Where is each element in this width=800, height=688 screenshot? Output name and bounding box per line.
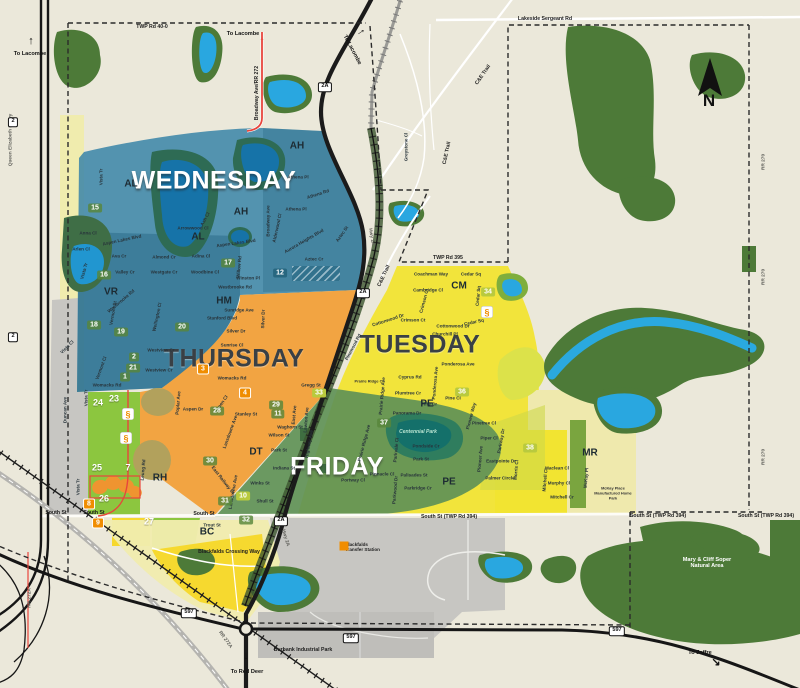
zone-number-badge: 1 — [120, 373, 130, 382]
street-label: Cyprus Rd — [398, 375, 421, 380]
street-label: Arlen Cl — [72, 247, 90, 252]
street-label: Aspen Lakes Blvd — [216, 238, 256, 248]
road-label: South St (TWP Rd 394) — [738, 513, 794, 519]
street-label: Parkway Dr — [496, 428, 505, 454]
arrow-icon: ↓ — [243, 650, 249, 662]
arrow-icon: ↑ — [259, 35, 265, 47]
direction-label: To Lacombe — [227, 31, 260, 37]
neighborhood-code: AH — [290, 141, 304, 152]
street-label: Sunridge Ave — [224, 308, 253, 313]
street-label: Vista Tr — [99, 169, 104, 186]
zone-number-badge: 11 — [271, 410, 284, 419]
street-label: Valley Cr — [115, 270, 134, 275]
road-label: C&E Trail — [474, 64, 492, 86]
street-label: Mitchell Cl — [542, 468, 549, 491]
zone-number-badge: 29 — [269, 401, 283, 410]
street-label: Pondside Cr — [412, 444, 439, 449]
street-label: Aurora Heights Blvd — [284, 228, 325, 255]
park-label: Centennial Park — [395, 429, 441, 435]
street-label: Athena Rd — [306, 188, 329, 200]
street-label: Westview Cr — [145, 368, 172, 373]
street-label: Broadway Ave — [266, 205, 271, 236]
street-label: Athena Pl — [285, 207, 306, 212]
north-label: N — [703, 91, 715, 111]
street-label: Palisades St — [400, 473, 427, 478]
street-label: Silver Dr — [227, 329, 246, 334]
edge-road-label: RR 270 — [762, 154, 767, 170]
zone-number-badge: 8 — [83, 499, 95, 510]
zone-number-badge: 32 — [239, 516, 253, 525]
arrow-icon: ↑ — [28, 35, 34, 47]
edge-road-label: RR 270 — [762, 449, 767, 465]
street-label: Aspen Dr — [183, 407, 203, 412]
highway-shield: 2A — [274, 516, 288, 526]
zone-number-badge: 3 — [197, 364, 209, 375]
highway-shield: 597 — [181, 608, 197, 618]
zone-number-badge: 36 — [455, 388, 469, 397]
neighborhood-code: CM — [451, 281, 467, 292]
note-label: Blackfalds Transfer Station — [345, 542, 387, 552]
road-label: Burbank Industrial Park — [274, 647, 333, 653]
school-icon: § — [482, 307, 493, 318]
street-label: Waghorn St — [277, 425, 303, 430]
street-label: Lansdowne Ave — [222, 415, 239, 449]
street-label: Winston Pl — [236, 276, 260, 281]
street-label: Greystone Cl — [404, 133, 409, 162]
street-label: Crimson Ct — [401, 318, 426, 323]
zone-day-label: TUESDAY — [360, 331, 481, 360]
zone-number-badge: 34 — [481, 288, 495, 297]
street-label: Indiana St — [273, 466, 295, 471]
street-label: Parkridge Cr — [404, 486, 432, 491]
zone-number-badge: 2 — [129, 353, 139, 362]
street-label: Panorama Dr — [393, 411, 422, 416]
road-label: South St (TWP Rd 394) — [630, 513, 686, 519]
street-label: Womacks Rd — [218, 376, 247, 381]
street-label: Palmer Circle — [485, 476, 514, 481]
neighborhood-code: VR — [104, 287, 118, 298]
direction-label: To Red Deer — [231, 669, 264, 675]
street-label: Mitchell Cr — [550, 495, 573, 500]
road-label: TWP Rd 40-0 — [136, 24, 168, 30]
road-label: Blackfalds Crossing Way — [198, 549, 260, 555]
highway-shield: 2A — [318, 82, 332, 92]
school-icon: § — [121, 433, 132, 444]
street-label: Wilson St — [269, 433, 290, 438]
street-label: Ava Cr — [112, 254, 127, 259]
street-label: Eastpointe Dr — [486, 459, 516, 464]
zone-number-badge: 4 — [239, 388, 251, 399]
neighborhood-code: HM — [216, 296, 232, 307]
street-label: Shull St — [256, 499, 273, 504]
collection-zone-map: WEDNESDAYTHURSDAYTUESDAYFRIDAYTWP Rd 40-… — [0, 0, 800, 688]
road-label: C&E Trail — [376, 264, 391, 287]
street-label: Parkvale Cl — [392, 437, 399, 462]
zone-number-badge: 18 — [87, 321, 101, 330]
street-label: Vermont St — [108, 301, 117, 326]
street-label: Park St — [413, 457, 429, 462]
street-label: Womacks Rd — [93, 383, 122, 388]
street-label: Pioneer Way — [465, 402, 477, 430]
highway-shield: 2A — [356, 288, 370, 298]
edge-road-label: Hwy 2A — [367, 228, 375, 246]
street-label: Cedar Sq — [464, 317, 485, 326]
street-label: Woodbine Cl — [191, 270, 219, 275]
zone-number-badge: 33 — [312, 389, 326, 398]
street-label: Coachman Way — [414, 272, 448, 277]
street-label: Morris Cl — [513, 460, 520, 480]
street-label: Athena Pl — [287, 175, 308, 180]
street-label: Pine Cr — [421, 402, 437, 407]
road-label: South St — [83, 510, 104, 516]
neighborhood-code: AH — [234, 207, 248, 218]
note-label: McKay Place Manufactured Home Park — [592, 486, 634, 501]
street-label: Westbrooke Rd — [218, 285, 252, 290]
neighborhood-code: AL — [124, 179, 137, 190]
street-label: Ponderosa Ave — [431, 366, 439, 399]
edge-road-label: RR 272A — [28, 588, 33, 608]
street-label: Pinetree Cl — [472, 421, 496, 426]
street-label: Stanford Blvd — [207, 316, 237, 321]
road-label: Lakeside Sergeant Rd — [518, 16, 572, 22]
street-label: Portway Cl — [341, 478, 365, 483]
street-label: Vermont Cl — [95, 356, 108, 380]
arrow-icon: ↘ — [711, 656, 720, 669]
road-label: C&E Trail — [442, 141, 453, 165]
transfer-station-icon — [340, 542, 349, 551]
street-label: Vista Tr — [84, 390, 89, 407]
street-label: Vista Cl — [59, 339, 74, 354]
zone-number-badge: 10 — [236, 492, 250, 501]
zone-number-badge: 38 — [523, 444, 537, 453]
zone-number-badge: 12 — [273, 269, 287, 278]
zone-number-badge: 21 — [126, 364, 140, 373]
highway-shield: 2 — [8, 332, 18, 342]
street-label: Pinnacle Cl — [370, 472, 395, 477]
street-label: McKay Pl — [583, 468, 590, 489]
road-label: TWP Rd 395 — [433, 255, 463, 261]
edge-road-label: RR 270 — [762, 269, 767, 285]
street-label: Trout St — [203, 523, 220, 528]
neighborhood-code: DT — [249, 447, 262, 458]
street-label: Westview Cr — [147, 348, 174, 353]
zone-number-badge: 17 — [221, 259, 235, 268]
street-label: Parkwood Dr — [391, 476, 398, 505]
street-label: Aztec Cr — [305, 257, 324, 262]
neighborhood-code: RH — [153, 473, 167, 484]
direction-label: To Joffre — [688, 650, 712, 656]
zone-number-badge: 30 — [203, 457, 217, 466]
zone-number-badge: 28 — [210, 407, 224, 416]
zone-number-badge: 7 — [122, 463, 133, 474]
street-label: Anna Cl — [79, 231, 96, 236]
zone-day-label: THURSDAY — [164, 345, 305, 374]
street-label: Park St — [271, 448, 287, 453]
street-label: Vista Tr — [79, 262, 88, 279]
street-label: Churchill Pl — [432, 332, 458, 337]
street-label: Leung Rd — [140, 459, 147, 481]
street-label: Silver Dr — [260, 309, 266, 328]
road-label: Broadway Ave/RR 272 — [254, 66, 260, 120]
street-label: Winks St — [250, 481, 269, 486]
street-label: Adina Cl — [192, 254, 211, 259]
zone-number-badge: 24 — [90, 398, 106, 409]
road-label: South St — [45, 510, 66, 516]
arrow-icon: ↑ — [355, 26, 368, 37]
street-label: Aztec St — [335, 225, 349, 243]
map-labels-layer: WEDNESDAYTHURSDAYTUESDAYFRIDAYTWP Rd 40-… — [0, 0, 800, 688]
zone-number-badge: 25 — [89, 463, 105, 474]
zone-number-badge: 37 — [377, 419, 391, 428]
street-label: Murphy Cl — [548, 481, 570, 486]
zone-number-badge: 20 — [175, 323, 189, 332]
street-label: Westgate Cr — [151, 270, 178, 275]
street-label: Poplar Ave — [174, 391, 181, 415]
street-label: Almond Cr — [152, 255, 175, 260]
street-label: Duncan Ave — [63, 397, 68, 423]
school-icon: § — [123, 409, 134, 420]
edge-road-label: Hwy 2A — [280, 529, 290, 547]
street-label: Plumtree Cr — [395, 391, 421, 396]
street-label: Pioneer Ave — [476, 446, 483, 473]
zone-number-badge: 26 — [96, 494, 112, 505]
road-label: South St — [193, 511, 214, 517]
street-label: Cottonwood Dr — [371, 312, 404, 327]
zone-number-badge: 31 — [218, 497, 232, 506]
road-label: South St (TWP Rd 394) — [421, 514, 477, 520]
neighborhood-code: MR — [582, 448, 598, 459]
direction-label: Mary & Cliff Soper Natural Area — [676, 557, 738, 569]
neighborhood-code: AL — [191, 232, 204, 243]
direction-label: To Lacombe — [14, 51, 47, 57]
street-label: Cedar Sq — [461, 272, 481, 277]
zone-number-badge: 23 — [106, 394, 122, 405]
street-label: Wellington Cl — [152, 302, 163, 332]
neighborhood-code: BC — [200, 527, 214, 538]
street-label: Gregg St — [301, 383, 320, 388]
street-label: Vista Tr — [76, 479, 81, 496]
street-label: Alderwood Cl — [271, 213, 282, 243]
neighborhood-code: PE — [442, 477, 455, 488]
zone-day-label: WEDNESDAY — [132, 167, 297, 196]
zone-number-badge: 9 — [92, 518, 104, 529]
zone-number-badge: 27 — [141, 517, 157, 528]
street-label: Ash Cl — [199, 211, 210, 226]
zone-number-badge: 19 — [114, 328, 128, 337]
zone-number-badge: 16 — [97, 271, 111, 280]
street-label: Sunrise Cl — [221, 343, 244, 348]
highway-shield: 597 — [343, 633, 359, 643]
highway-shield: 2 — [8, 117, 18, 127]
highway-shield: 597 — [609, 626, 625, 636]
street-label: Piper Cl — [480, 436, 497, 441]
street-label: Maclean Cl — [545, 466, 569, 471]
zone-number-badge: 15 — [88, 204, 102, 213]
street-label: East Ave — [291, 405, 298, 424]
edge-road-label: RR 272A — [217, 630, 232, 649]
direction-label: To Lacombe — [342, 34, 363, 66]
street-label: Aspen Lakes Blvd — [102, 233, 142, 246]
street-label: Ponderosa Ave — [441, 362, 474, 367]
